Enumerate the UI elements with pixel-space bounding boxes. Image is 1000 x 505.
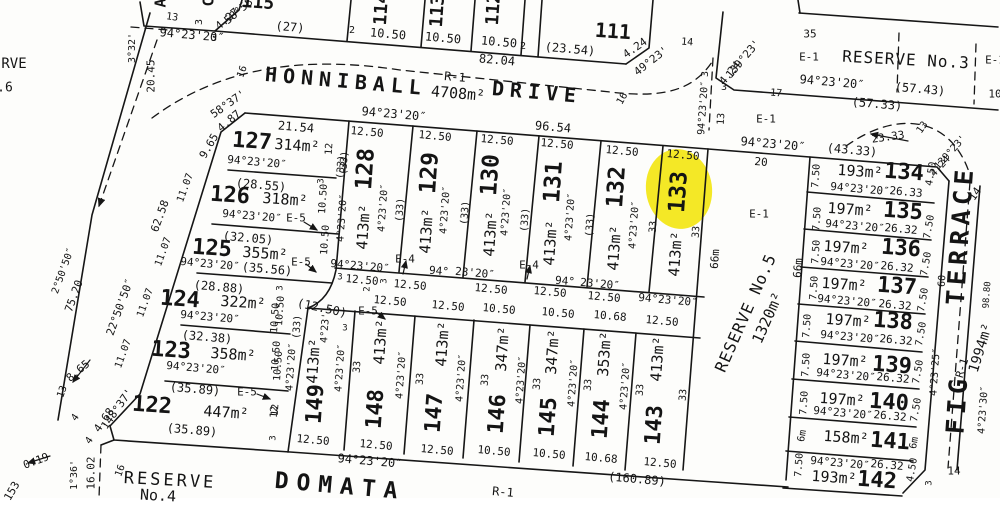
- dimension-label: 10.50: [273, 351, 285, 382]
- area-label: 413m²: [418, 208, 436, 254]
- dimension-label: 33: [679, 389, 690, 402]
- dimension-label: 2: [364, 286, 373, 291]
- area-label: 197m²: [823, 239, 869, 257]
- dimension-label: 10.50: [482, 302, 516, 316]
- area-label: 347m²: [544, 329, 562, 375]
- dimension-label: 33: [533, 378, 544, 391]
- dimension-label: 20.45: [146, 59, 157, 92]
- area-label: 347m²: [494, 326, 512, 372]
- area-label: 193m²: [811, 469, 857, 487]
- area-label: 4708m²: [430, 84, 485, 104]
- dimension-label: 26.32: [879, 333, 913, 347]
- area-label: 413m²: [372, 319, 390, 365]
- lot-number-148: 148: [364, 388, 389, 429]
- dimension-label: 3: [381, 278, 390, 283]
- partial-letter: A: [154, 0, 169, 8]
- dimension-label: 10.50: [532, 447, 566, 461]
- area-label: 158m²: [823, 429, 869, 447]
- reserve-no4-label: No.4: [140, 488, 177, 505]
- dimension-label: 7.50: [799, 391, 811, 416]
- dimension-label: 96.54: [534, 119, 571, 134]
- dimension-label: 66m: [709, 249, 721, 270]
- dimension-label: 33: [584, 379, 595, 392]
- area-label: 413m²: [542, 220, 560, 266]
- lot-number-112: 112: [484, 0, 504, 26]
- dimension-label: 3: [721, 83, 727, 93]
- lot-number-113: 113: [428, 0, 448, 28]
- dimension-label: (33): [520, 208, 532, 233]
- area-label: 318m²: [262, 191, 308, 209]
- dimension-label: 26.33: [889, 185, 923, 199]
- dimension-label: 2: [349, 26, 355, 36]
- dimension-label: 13: [165, 12, 178, 24]
- dimension-label: 14: [681, 37, 694, 48]
- lot-number-129: 129: [417, 151, 443, 194]
- dimension-label: 20: [754, 156, 768, 168]
- dimension-label: 12.50: [474, 282, 508, 296]
- area-label: 353m²: [596, 331, 614, 377]
- dimension-label: (33): [395, 198, 407, 223]
- dimension-label: 7.50: [811, 164, 823, 189]
- dimension-label: 12.50: [296, 433, 330, 447]
- dimension-label: 12.50: [480, 133, 514, 147]
- dimension-label: 10.50: [480, 34, 517, 49]
- dimension-label: (33): [585, 213, 597, 238]
- dimension-label: 7.50: [802, 314, 814, 339]
- dimension-label: (27): [275, 20, 305, 34]
- dimension-label: 2: [520, 42, 526, 52]
- lot-number-145: 145: [537, 396, 562, 437]
- dimension-label: 10.50: [477, 444, 511, 458]
- easement-label: E-1: [756, 114, 776, 125]
- dimension-label: 12.50: [645, 314, 679, 328]
- street-name-fig: FIG: [942, 373, 971, 435]
- dimension-label: (33): [460, 201, 472, 226]
- dimension-label: 12: [325, 143, 336, 156]
- lot-number-141: 141: [869, 430, 910, 455]
- dimension-label: 12.50: [420, 443, 454, 457]
- dimension-label: 13: [717, 113, 728, 126]
- dimension-label: 10.50: [270, 303, 282, 334]
- dimension-label: 12: [271, 404, 282, 417]
- dimension-label: 33: [649, 221, 660, 234]
- lot-number-130: 130: [478, 153, 504, 196]
- area-label: 447m²: [203, 404, 249, 422]
- bearing-label: 1°36': [70, 460, 80, 490]
- area-label: 197m²: [827, 201, 873, 219]
- dimension-label: (33): [292, 315, 304, 340]
- easement-label: E-5: [358, 306, 378, 317]
- area-label: 197m²: [825, 312, 871, 330]
- lot-number-122: 122: [131, 394, 172, 419]
- dimension-label: 10.50: [318, 184, 330, 215]
- lot-number-143: 143: [643, 404, 668, 445]
- dimension-label: 12.50: [666, 148, 700, 162]
- dimension-label: 26.32: [884, 222, 918, 236]
- lot-number-137: 137: [876, 275, 917, 300]
- lot-number-142: 142: [856, 469, 897, 494]
- easement-label: E-5: [286, 213, 306, 224]
- dimension-label: 7.50: [801, 353, 813, 378]
- dimension-label: 3: [270, 435, 279, 440]
- area-label: 358m²: [210, 346, 256, 364]
- dimension-label: 12.50: [418, 129, 452, 143]
- dimension-label: 10.68: [593, 309, 627, 323]
- dimension-label: 33: [353, 361, 364, 374]
- area-label: 413m²: [305, 338, 323, 384]
- dimension-label: 10.50: [541, 306, 575, 320]
- lot-number-131: 131: [541, 160, 567, 203]
- area-label: 413m²: [434, 321, 452, 367]
- dimension-label: 12.50: [431, 299, 465, 313]
- zone-label: R-1: [492, 485, 515, 499]
- dimension-label: 12.50: [605, 144, 639, 158]
- area-label: 193m²: [837, 163, 883, 181]
- dimension-label: 3: [277, 285, 286, 290]
- dimension-label: 98.80: [983, 281, 994, 309]
- dimension-label: 10.50: [424, 30, 461, 45]
- easement-label: E-4: [395, 254, 415, 265]
- area-label: 413m²: [649, 336, 667, 382]
- dimension-label: 7.50: [812, 207, 824, 232]
- dimension-label: 12.50: [393, 278, 427, 292]
- dimension-label: 26.32: [880, 260, 914, 274]
- bearing-label: 23'20″: [455, 266, 496, 280]
- lot-number-127: 127: [231, 130, 272, 155]
- dimension-label: 12.50: [643, 456, 677, 470]
- area-label: 413m²: [355, 204, 373, 250]
- dimension-label: 33: [636, 384, 647, 397]
- partial-letter: C: [202, 0, 217, 7]
- area-label: 413m²: [667, 231, 685, 277]
- lot-number-114: 114: [372, 0, 392, 26]
- lot-number-149: 149: [304, 383, 329, 424]
- dimension-label: 12.50: [359, 438, 393, 452]
- lot-number-136: 136: [880, 237, 921, 262]
- lot-number-138: 138: [872, 310, 913, 335]
- dimension-label: 7.50: [794, 453, 806, 478]
- dimension-label: 14: [947, 466, 960, 477]
- zone-label: R-1: [444, 70, 467, 84]
- easement-label: E-5: [291, 257, 311, 268]
- dimension-label: 10: [988, 89, 1000, 100]
- dimension-label: 21.54: [277, 119, 314, 134]
- dimension-label: 10.68: [584, 451, 618, 465]
- dimension-label: 12.50: [540, 137, 574, 151]
- dimension-label: 12.50: [373, 294, 407, 308]
- easement-label: E-1: [985, 55, 1000, 66]
- easement-label: E-5: [237, 387, 257, 398]
- dimension-label: 3: [195, 19, 205, 25]
- survey-plan: RVE.63°32'20.45133394°23'20″AC11558°58'4…: [0, 0, 1000, 498]
- lot-number-146: 146: [486, 393, 511, 434]
- dimension-label: 82.04: [478, 52, 515, 67]
- bearing-label: 3°32': [128, 33, 138, 63]
- easement-label: E-1: [799, 52, 819, 63]
- dimension-label: 3: [926, 480, 935, 485]
- dimension-label: 12.50: [350, 125, 384, 139]
- dimension-label: 3: [342, 325, 347, 334]
- lot-number-111: 111: [594, 20, 631, 42]
- area-label: 197m²: [821, 276, 867, 294]
- reserve-label-cut: RVE: [1, 57, 26, 71]
- area-label: 322m²: [220, 294, 266, 312]
- lot-number-144: 144: [590, 398, 615, 439]
- dimension-label: 26.32: [876, 371, 910, 385]
- area-label: 413m²: [606, 225, 624, 271]
- dimension-label: 33: [692, 226, 703, 239]
- dimension-label: 17: [770, 88, 783, 99]
- reserve-label-cut: .6: [0, 82, 13, 95]
- dimension-label: 33: [481, 374, 492, 387]
- dimension-label: 16.02: [86, 456, 97, 489]
- dimension-label: 3: [337, 274, 342, 283]
- dimension-label: 6m: [909, 436, 921, 450]
- lot-number-132: 132: [604, 165, 630, 208]
- dimension-label: 35: [803, 29, 816, 40]
- dimension-label: 10.50: [369, 26, 406, 41]
- lot-number-133[interactable]: 133: [666, 170, 692, 213]
- dimension-label: 3: [701, 71, 711, 77]
- lot-number-134: 134: [883, 161, 924, 186]
- area-label: 413m²: [482, 211, 500, 257]
- dimension-label: 6m: [797, 429, 809, 443]
- lot-number-128: 128: [353, 147, 379, 190]
- easement-label: E-1: [749, 209, 769, 220]
- dimension-label: 66m: [792, 258, 804, 279]
- easement-label: E-4: [519, 260, 539, 271]
- dimension-label: 26.32: [873, 409, 907, 423]
- bearing-label: 23'20″: [580, 277, 621, 291]
- dimension-label: 12.50: [533, 285, 567, 299]
- dimension-label: 12.50: [587, 290, 621, 304]
- dimension-label: 12.50: [345, 273, 379, 287]
- dimension-label: 10.50: [320, 225, 332, 256]
- dimension-label: (33): [336, 155, 348, 180]
- bearing-label: 94°: [429, 265, 450, 278]
- dimension-label: 33: [416, 373, 427, 386]
- area-label: 314m²: [274, 137, 320, 155]
- lot-number-126: 126: [209, 184, 250, 209]
- lot-number-147: 147: [423, 392, 448, 433]
